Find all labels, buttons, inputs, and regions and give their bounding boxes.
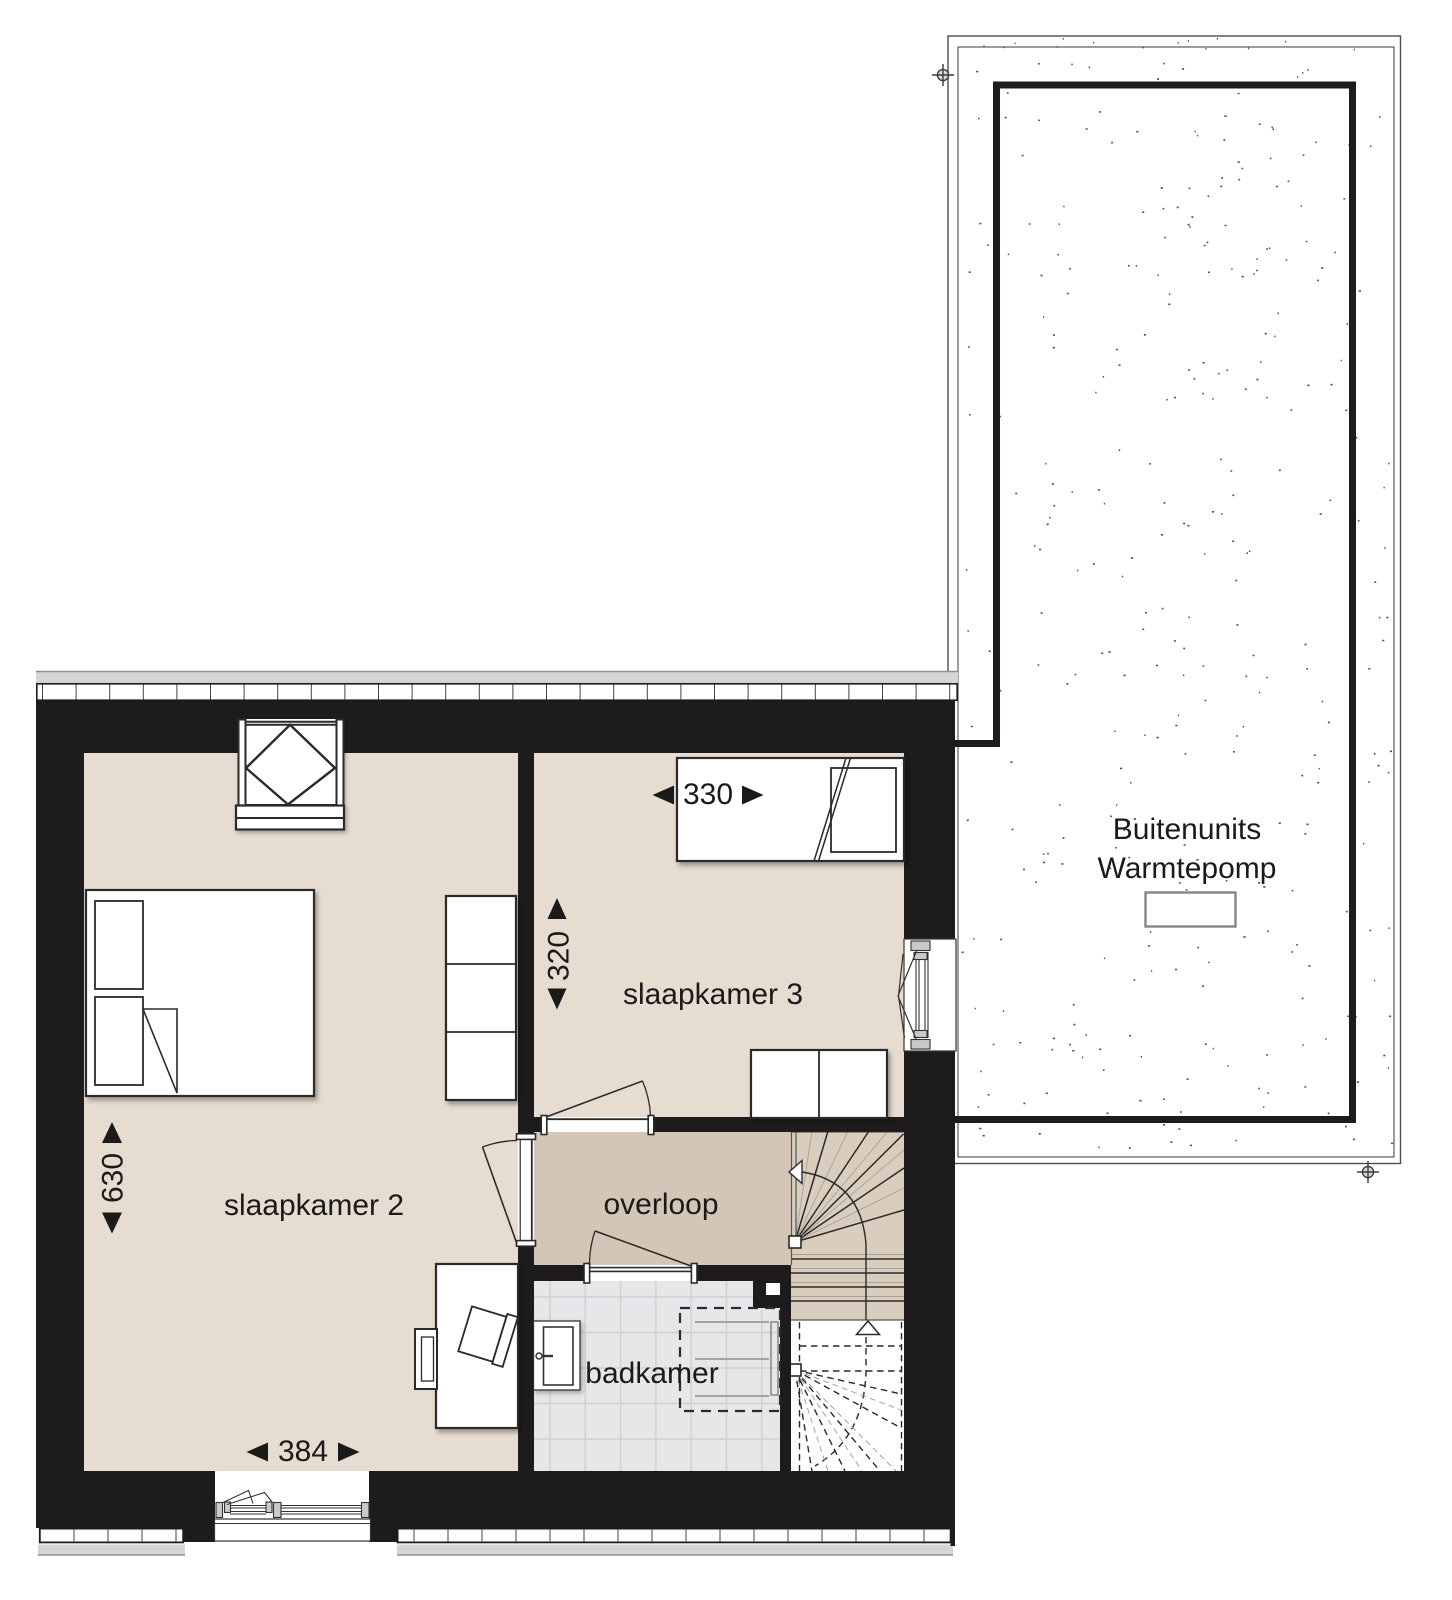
svg-text:Warmtepomp: Warmtepomp xyxy=(1098,852,1277,885)
svg-text:330: 330 xyxy=(683,778,733,811)
svg-text:overloop: overloop xyxy=(603,1188,718,1221)
svg-text:slaapkamer 3: slaapkamer 3 xyxy=(623,978,803,1011)
svg-text:slaapkamer 2: slaapkamer 2 xyxy=(224,1189,404,1222)
svg-text:badkamer: badkamer xyxy=(585,1357,718,1390)
svg-text:384: 384 xyxy=(278,1435,328,1468)
svg-text:320: 320 xyxy=(543,931,576,981)
svg-text:Buitenunits: Buitenunits xyxy=(1113,813,1261,846)
svg-text:630: 630 xyxy=(97,1153,130,1203)
